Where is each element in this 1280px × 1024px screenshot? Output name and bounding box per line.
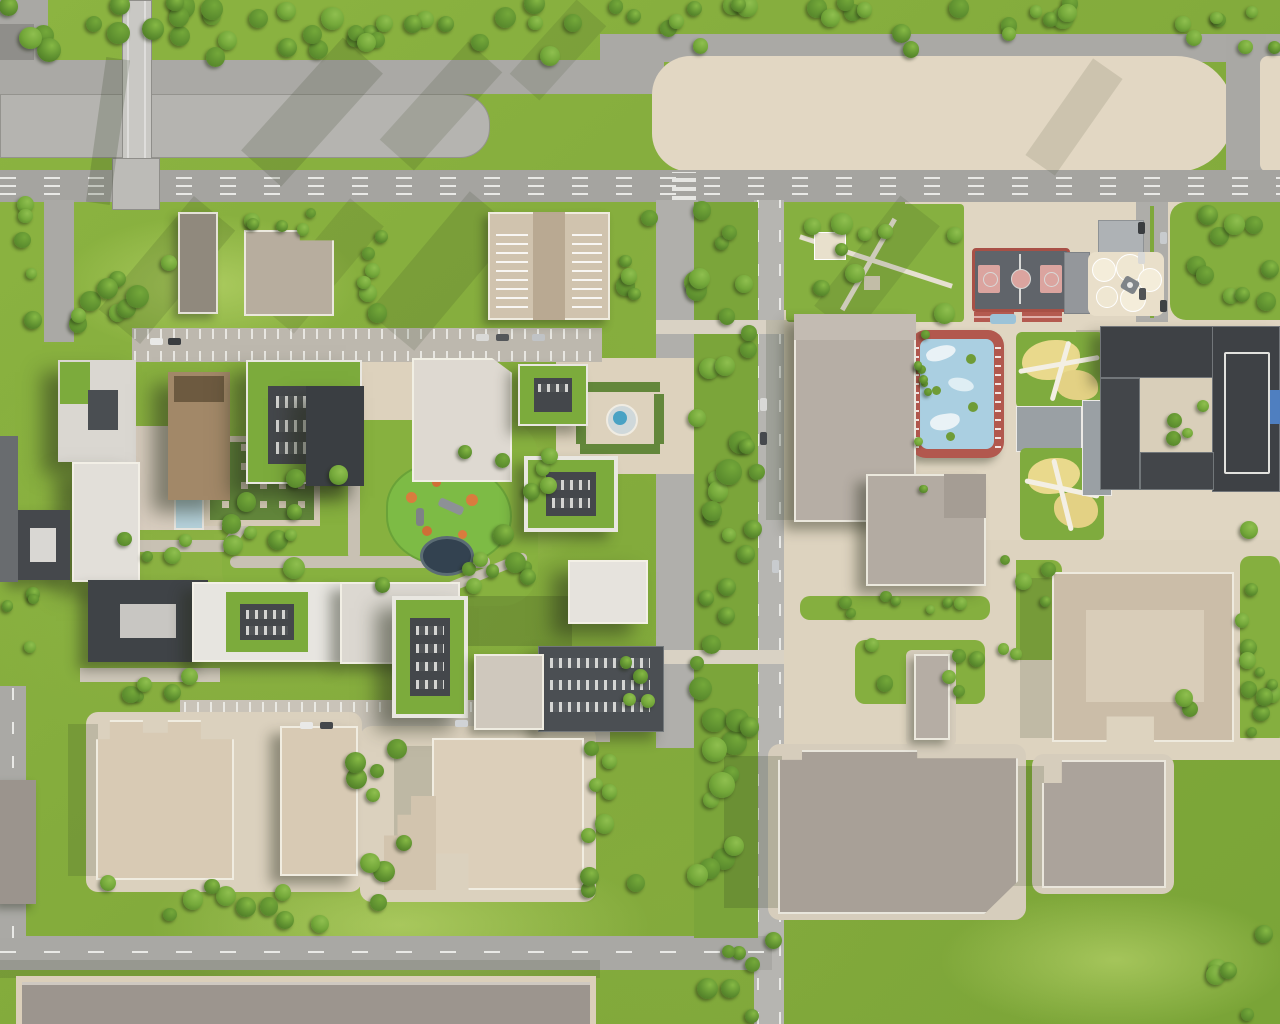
slab-far-left	[0, 780, 36, 904]
tree	[362, 247, 375, 260]
tree	[117, 532, 131, 546]
tree	[1253, 705, 1270, 722]
hedge-row	[654, 394, 664, 444]
tree	[1002, 27, 1016, 41]
tree	[0, 0, 18, 16]
tree	[924, 388, 932, 396]
tree	[1198, 205, 1218, 225]
tree	[1240, 521, 1258, 539]
lane-line	[0, 185, 1280, 187]
tree	[1058, 4, 1077, 23]
car	[300, 722, 313, 729]
tree	[471, 34, 489, 52]
tree	[919, 485, 927, 493]
car	[1138, 252, 1145, 264]
car	[150, 338, 163, 345]
plaza-right-sliver	[1260, 56, 1280, 172]
car	[1160, 232, 1167, 244]
tree	[26, 268, 37, 279]
lane-line	[0, 193, 1280, 195]
hvac-row	[416, 644, 444, 653]
hvac-row	[246, 626, 288, 635]
tree	[249, 9, 268, 28]
tree	[628, 288, 641, 301]
parking-marks	[496, 228, 528, 308]
hvac-row	[416, 662, 444, 671]
massing-block	[914, 654, 950, 740]
tree	[285, 529, 297, 541]
green-roof-patch	[60, 362, 90, 404]
tree	[619, 255, 631, 267]
tree	[223, 535, 243, 555]
tree	[1043, 12, 1058, 27]
tree	[375, 577, 391, 593]
tree	[164, 547, 181, 564]
tree	[602, 754, 617, 769]
tree	[669, 14, 684, 29]
aerial-masterplan-render	[0, 0, 1280, 1024]
tree	[370, 894, 387, 911]
car	[1139, 288, 1146, 300]
tree	[737, 545, 755, 563]
tree	[878, 224, 893, 239]
tree	[495, 7, 516, 28]
hvac-row	[550, 658, 650, 668]
bleachers	[1022, 312, 1062, 322]
tree	[179, 534, 192, 547]
bridge-landing	[112, 158, 160, 210]
shrub	[966, 354, 976, 364]
tree	[438, 16, 454, 32]
hvac-row	[538, 384, 568, 392]
tree	[368, 303, 388, 323]
tree	[1175, 689, 1193, 707]
tree	[943, 597, 953, 607]
tree	[495, 453, 510, 468]
tree	[914, 361, 922, 369]
tree	[1238, 40, 1252, 54]
car	[496, 334, 509, 341]
tree	[1182, 428, 1192, 438]
hvac-row	[416, 626, 444, 635]
tree	[540, 477, 557, 494]
tree	[739, 439, 754, 454]
tree	[404, 15, 422, 33]
tree	[107, 22, 130, 45]
tree	[19, 27, 42, 50]
building-cast-shadow	[766, 320, 796, 520]
sand-mound	[1056, 370, 1098, 400]
tree	[1268, 41, 1280, 54]
tree	[297, 223, 309, 235]
car	[772, 560, 779, 573]
lane-line	[0, 951, 772, 953]
tree	[699, 590, 714, 605]
play-equipment	[437, 497, 464, 516]
tree	[564, 14, 582, 32]
car	[320, 722, 333, 729]
tree	[718, 607, 735, 624]
tree	[286, 469, 305, 488]
car	[476, 334, 489, 341]
tree	[1235, 287, 1250, 302]
tree	[1255, 925, 1273, 943]
tree	[715, 356, 735, 376]
car	[1138, 222, 1145, 234]
massing-block	[280, 726, 358, 876]
tree	[137, 677, 152, 692]
tree	[18, 209, 32, 223]
school-entrance-canopy	[1270, 390, 1280, 424]
tree	[741, 325, 757, 341]
court-key-circle	[983, 272, 998, 287]
lane-line	[0, 177, 1280, 179]
tree	[97, 278, 118, 299]
building-north-b	[244, 230, 334, 316]
block-green-roof	[518, 364, 588, 426]
tree	[28, 594, 39, 605]
tree	[595, 814, 615, 834]
car	[760, 432, 767, 445]
tree	[1245, 583, 1258, 596]
tree	[540, 46, 560, 66]
roof-core	[88, 390, 118, 430]
roof-cap	[174, 376, 224, 402]
splash-pad	[990, 314, 1016, 324]
tree	[1010, 648, 1022, 660]
tower-brown	[168, 372, 230, 500]
hedge-row	[580, 444, 660, 454]
tree	[584, 741, 599, 756]
play-dot	[422, 526, 432, 536]
roof-step	[944, 474, 986, 518]
tree	[345, 752, 366, 773]
massing-block	[778, 750, 1018, 914]
car	[455, 720, 468, 727]
tree	[627, 874, 645, 892]
tree	[283, 557, 305, 579]
tree	[1000, 555, 1010, 565]
hvac-row	[416, 680, 444, 689]
car	[760, 398, 767, 411]
tower-green-roof-south	[392, 596, 468, 718]
playground-circles	[1088, 252, 1164, 316]
tree	[1166, 431, 1181, 446]
tree	[1241, 681, 1257, 697]
tower-dark-small	[16, 510, 70, 580]
tree	[237, 492, 256, 511]
tree	[376, 15, 393, 32]
court-center-circle	[1011, 269, 1031, 289]
tree	[627, 9, 641, 23]
tree	[1246, 6, 1258, 18]
tree	[687, 864, 709, 886]
tree	[1247, 727, 1257, 737]
tree	[857, 2, 873, 18]
court-key-circle	[1044, 272, 1059, 287]
parking-marks	[572, 228, 602, 308]
tree	[813, 280, 829, 296]
roof-gray	[22, 985, 590, 1024]
tree	[1015, 573, 1032, 590]
tree	[473, 552, 488, 567]
hvac-row	[552, 498, 590, 508]
tree	[170, 26, 190, 46]
tree	[721, 979, 739, 997]
tree	[697, 978, 719, 1000]
tree	[260, 897, 279, 916]
tree	[276, 911, 294, 929]
tree	[86, 16, 102, 32]
tree	[287, 504, 302, 519]
tree	[709, 772, 735, 798]
roof-white-core	[30, 528, 56, 562]
play-circle	[1092, 258, 1116, 282]
tree	[689, 268, 710, 289]
tree	[687, 1, 702, 16]
building-bottom-long	[16, 976, 596, 1024]
fountain-pool	[613, 411, 627, 425]
shrub	[968, 402, 978, 412]
tree	[858, 227, 872, 241]
tree	[387, 739, 407, 759]
bleacher-step	[1022, 316, 1062, 318]
parking-stalls	[134, 351, 600, 361]
sand-play-area	[1016, 332, 1104, 408]
tower-nw-white	[58, 360, 136, 462]
tree	[1030, 5, 1043, 18]
boulevard-crossing	[656, 650, 784, 664]
tree	[702, 708, 727, 733]
building-cast-shadow	[68, 724, 98, 876]
tree	[1256, 688, 1274, 706]
roof-inner	[1086, 610, 1204, 702]
tree	[311, 915, 329, 933]
tree	[218, 31, 237, 50]
tree	[2, 600, 13, 611]
tree	[688, 409, 706, 427]
play-circle	[1096, 286, 1118, 308]
building-north-a	[178, 212, 218, 314]
massing-block	[96, 720, 234, 880]
tree	[24, 311, 42, 329]
massing-block	[1052, 572, 1234, 742]
play-dot	[466, 494, 478, 506]
tree	[845, 264, 865, 284]
tree	[1041, 562, 1056, 577]
tree	[891, 596, 901, 606]
roof-white-core	[120, 604, 176, 638]
tree	[142, 551, 153, 562]
car	[1160, 300, 1167, 312]
tree	[846, 608, 856, 618]
tree	[183, 889, 204, 910]
car	[168, 338, 181, 345]
tree	[749, 464, 765, 480]
tree	[921, 330, 930, 339]
track-marks	[995, 340, 1001, 448]
roof-band	[794, 314, 916, 340]
tree	[486, 564, 500, 578]
climbing-structure-top	[1127, 282, 1133, 288]
tree	[278, 38, 297, 57]
hvac-row	[550, 702, 650, 712]
hedge-row	[580, 382, 660, 392]
tree	[1257, 292, 1276, 311]
tree	[954, 597, 967, 610]
block-solar-dark	[88, 580, 208, 662]
hvac-row	[246, 610, 288, 619]
tree	[236, 897, 255, 916]
slab-white-east	[568, 560, 648, 624]
tree	[821, 9, 839, 27]
slab-white-courtyard	[192, 582, 342, 662]
crosswalk-main	[672, 172, 696, 200]
tree	[934, 303, 955, 324]
tree	[528, 16, 543, 31]
tree	[1239, 652, 1256, 669]
tree	[745, 1009, 759, 1023]
tree	[1235, 613, 1250, 628]
roof-band	[533, 212, 565, 320]
tree	[880, 591, 891, 602]
block-tan	[474, 654, 544, 730]
stair-terrace	[1064, 252, 1090, 314]
hvac-row	[552, 480, 590, 490]
tree	[163, 908, 177, 922]
tree	[1186, 30, 1202, 46]
tree	[641, 210, 657, 226]
roof-outline	[1224, 352, 1270, 474]
slab-dark-se	[538, 646, 664, 732]
parking-stalls	[134, 329, 600, 339]
tree	[602, 784, 618, 800]
tree	[719, 308, 735, 324]
basketball-court	[972, 248, 1070, 312]
tree	[620, 656, 633, 669]
tree	[329, 465, 349, 485]
tree	[745, 957, 760, 972]
tree	[370, 764, 384, 778]
tree	[609, 0, 623, 14]
tree	[110, 0, 130, 15]
tree	[952, 649, 966, 663]
kindergarten-roof	[1016, 406, 1082, 452]
tree	[633, 669, 648, 684]
building-north-c	[488, 212, 610, 320]
tree	[142, 18, 163, 39]
parking-row-north	[132, 328, 602, 362]
tree	[524, 0, 545, 14]
tree	[581, 828, 595, 842]
tree	[122, 686, 139, 703]
school-wing-west	[1100, 378, 1140, 490]
shrub	[932, 386, 941, 395]
tree	[523, 483, 540, 500]
tree	[277, 2, 295, 20]
tree	[718, 578, 736, 596]
school-wing-south	[1140, 452, 1214, 490]
plaza-top-right	[652, 56, 1234, 172]
tree	[1196, 266, 1214, 284]
tree	[831, 213, 853, 235]
tree	[722, 945, 735, 958]
tree	[1175, 16, 1191, 32]
tree	[740, 717, 760, 737]
car	[532, 334, 545, 341]
tree	[14, 232, 31, 249]
tree	[702, 737, 727, 762]
tree	[621, 268, 638, 285]
tree	[181, 668, 198, 685]
tree	[375, 230, 388, 243]
tree	[164, 684, 181, 701]
tree	[201, 0, 223, 20]
shrub	[946, 432, 955, 441]
tree	[247, 218, 259, 230]
play-dot	[406, 492, 417, 503]
tree	[693, 201, 712, 220]
tower-white-grid	[72, 462, 140, 582]
tree	[949, 0, 969, 18]
tree	[244, 526, 257, 539]
play-equipment	[416, 508, 424, 526]
tree	[1224, 214, 1244, 234]
slab-edge-dark	[0, 436, 18, 582]
tree	[357, 33, 376, 52]
tree	[24, 641, 36, 653]
tree	[765, 932, 782, 949]
bridge-rail	[127, 1, 129, 159]
tree	[321, 7, 344, 30]
tree	[222, 514, 242, 534]
